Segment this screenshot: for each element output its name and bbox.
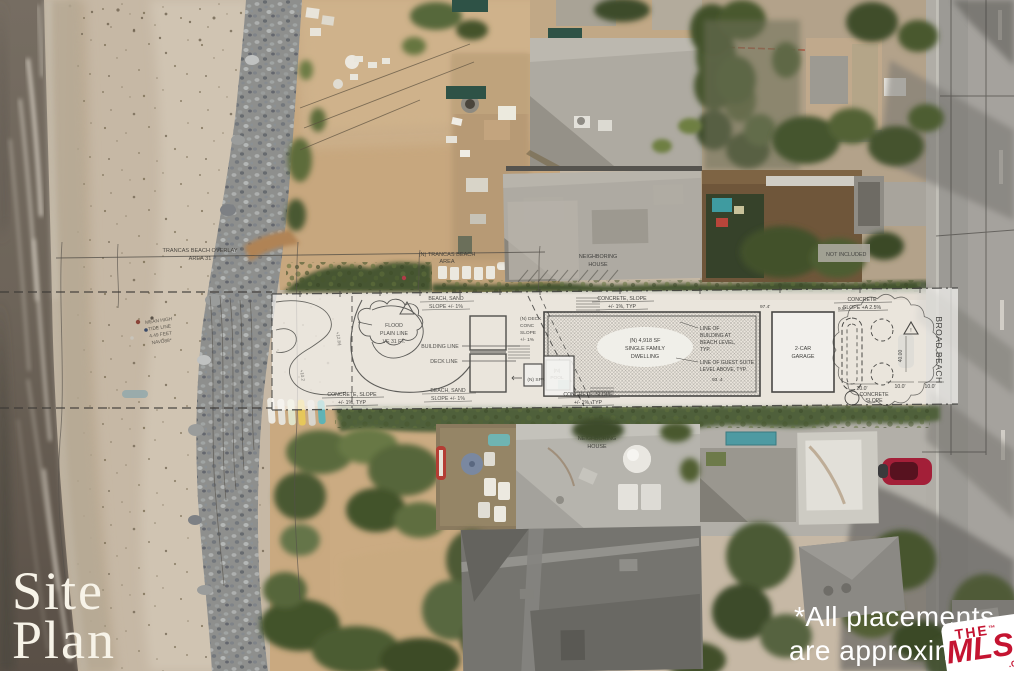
svg-text:SINGLE FAMILY: SINGLE FAMILY [625, 346, 665, 352]
svg-text:(N) SPA: (N) SPA [527, 377, 545, 383]
svg-text:AREA 31: AREA 31 [189, 256, 212, 262]
svg-text:(N) 4,918 SF: (N) 4,918 SF [630, 338, 662, 344]
svg-text:PLAIN LINE: PLAIN LINE [380, 331, 409, 337]
svg-text:NOT INCLUDED: NOT INCLUDED [826, 252, 866, 258]
svg-text:DECK LINE: DECK LINE [430, 359, 458, 365]
svg-text:(N) TRANCAS BEACH: (N) TRANCAS BEACH [419, 252, 476, 258]
svg-text:93 .4: 93 .4 [712, 377, 723, 383]
svg-text:LINE OF GUEST SUITE: LINE OF GUEST SUITE [700, 360, 755, 366]
svg-text:CONC: CONC [520, 323, 535, 329]
svg-text:TRANCAS BEACH OVERLAY: TRANCAS BEACH OVERLAY [162, 248, 237, 254]
svg-text:AREA: AREA [439, 259, 455, 265]
svg-text:2-CAR: 2-CAR [795, 346, 811, 352]
svg-text:SLOPE: SLOPE [520, 330, 536, 336]
svg-text:GARAGE: GARAGE [791, 354, 814, 360]
svg-text:FLOOD: FLOOD [385, 323, 403, 329]
svg-text:LEVEL ABOVE, TYP.: LEVEL ABOVE, TYP. [700, 367, 747, 373]
svg-text:NEIGHBORING: NEIGHBORING [579, 254, 617, 260]
svg-text:HOUSE: HOUSE [588, 262, 608, 268]
svg-text:!: ! [910, 328, 911, 334]
svg-text:SLOPE: SLOPE [865, 398, 883, 404]
svg-text:DWELLING: DWELLING [631, 354, 659, 360]
svg-text:VE 31 FT.: VE 31 FT. [383, 339, 406, 345]
svg-text:10.0': 10.0' [894, 384, 905, 390]
svg-text:LINE OF: LINE OF [700, 326, 719, 332]
svg-text:HOUSE: HOUSE [587, 444, 607, 450]
svg-text:+/- 1%: +/- 1% [520, 337, 535, 343]
svg-text:(N) DECK: (N) DECK [520, 316, 542, 322]
svg-text:BUILDING AT: BUILDING AT [700, 333, 731, 339]
svg-text:40.00: 40.00 [898, 350, 904, 363]
svg-text:97.4': 97.4' [760, 304, 770, 310]
svg-text:BROAD BEACH: BROAD BEACH [934, 316, 944, 383]
svg-text:TYP.: TYP. [700, 347, 710, 353]
svg-text:BUILDING LINE: BUILDING LINE [421, 344, 459, 350]
svg-text:BEACH LEVEL,: BEACH LEVEL, [700, 340, 736, 346]
svg-text:10.0': 10.0' [924, 384, 935, 390]
